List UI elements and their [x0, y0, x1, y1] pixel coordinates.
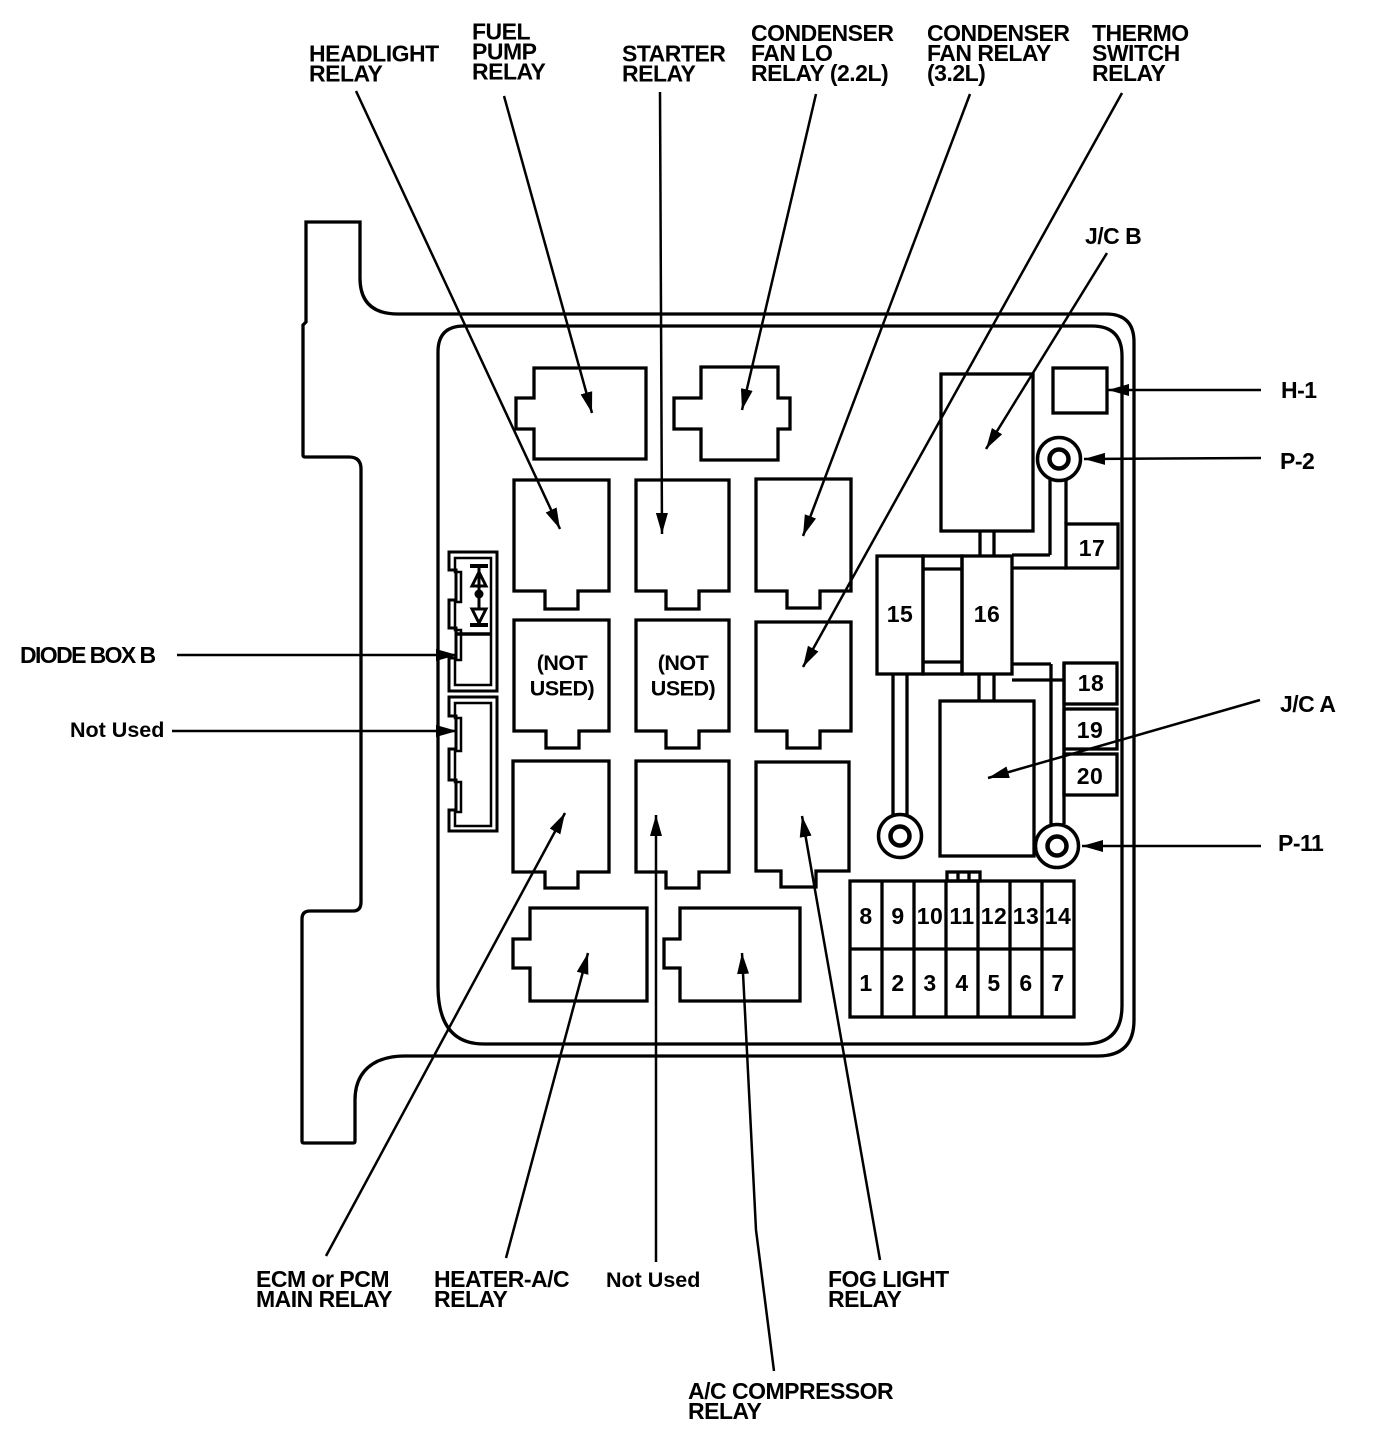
svg-text:RELAY: RELAY: [828, 1286, 901, 1312]
svg-text:RELAY: RELAY: [434, 1286, 507, 1312]
svg-text:13: 13: [1013, 903, 1040, 929]
svg-text:15: 15: [887, 601, 914, 627]
svg-text:6: 6: [1019, 970, 1032, 996]
svg-text:17: 17: [1079, 535, 1106, 561]
svg-text:(NOT: (NOT: [537, 651, 588, 675]
svg-text:20: 20: [1077, 763, 1104, 789]
svg-text:(3.2L): (3.2L): [927, 60, 985, 86]
svg-text:4: 4: [955, 970, 968, 996]
svg-text:19: 19: [1077, 717, 1104, 743]
svg-text:Not Used: Not Used: [606, 1268, 700, 1292]
svg-text:1: 1: [859, 970, 872, 996]
svg-text:10: 10: [917, 903, 944, 929]
svg-text:12: 12: [981, 903, 1008, 929]
svg-text:18: 18: [1078, 670, 1105, 696]
svg-text:J/C A: J/C A: [1280, 691, 1335, 717]
svg-text:7: 7: [1051, 970, 1064, 996]
svg-text:RELAY: RELAY: [1092, 60, 1165, 86]
svg-text:RELAY: RELAY: [472, 59, 545, 85]
svg-text:14: 14: [1045, 903, 1072, 929]
svg-text:USED): USED): [651, 677, 716, 701]
svg-text:9: 9: [891, 903, 904, 929]
svg-text:P-2: P-2: [1280, 448, 1314, 474]
svg-text:(NOT: (NOT: [658, 651, 709, 675]
svg-text:3: 3: [923, 970, 936, 996]
svg-text:11: 11: [949, 903, 974, 929]
svg-text:RELAY (2.2L): RELAY (2.2L): [751, 60, 888, 86]
svg-text:RELAY: RELAY: [622, 61, 695, 87]
svg-text:16: 16: [974, 601, 1001, 627]
svg-text:Not Used: Not Used: [70, 718, 164, 742]
svg-text:USED): USED): [530, 677, 595, 701]
svg-text:8: 8: [859, 903, 872, 929]
svg-text:5: 5: [987, 970, 1000, 996]
svg-text:2: 2: [891, 970, 904, 996]
svg-text:DIODE BOX B: DIODE BOX B: [20, 642, 155, 668]
svg-text:RELAY: RELAY: [309, 61, 382, 87]
svg-text:P-11: P-11: [1278, 830, 1324, 856]
svg-text:J/C B: J/C B: [1085, 223, 1141, 249]
svg-text:H-1: H-1: [1281, 377, 1317, 403]
svg-text:MAIN RELAY: MAIN RELAY: [256, 1286, 392, 1312]
svg-text:RELAY: RELAY: [688, 1398, 761, 1424]
